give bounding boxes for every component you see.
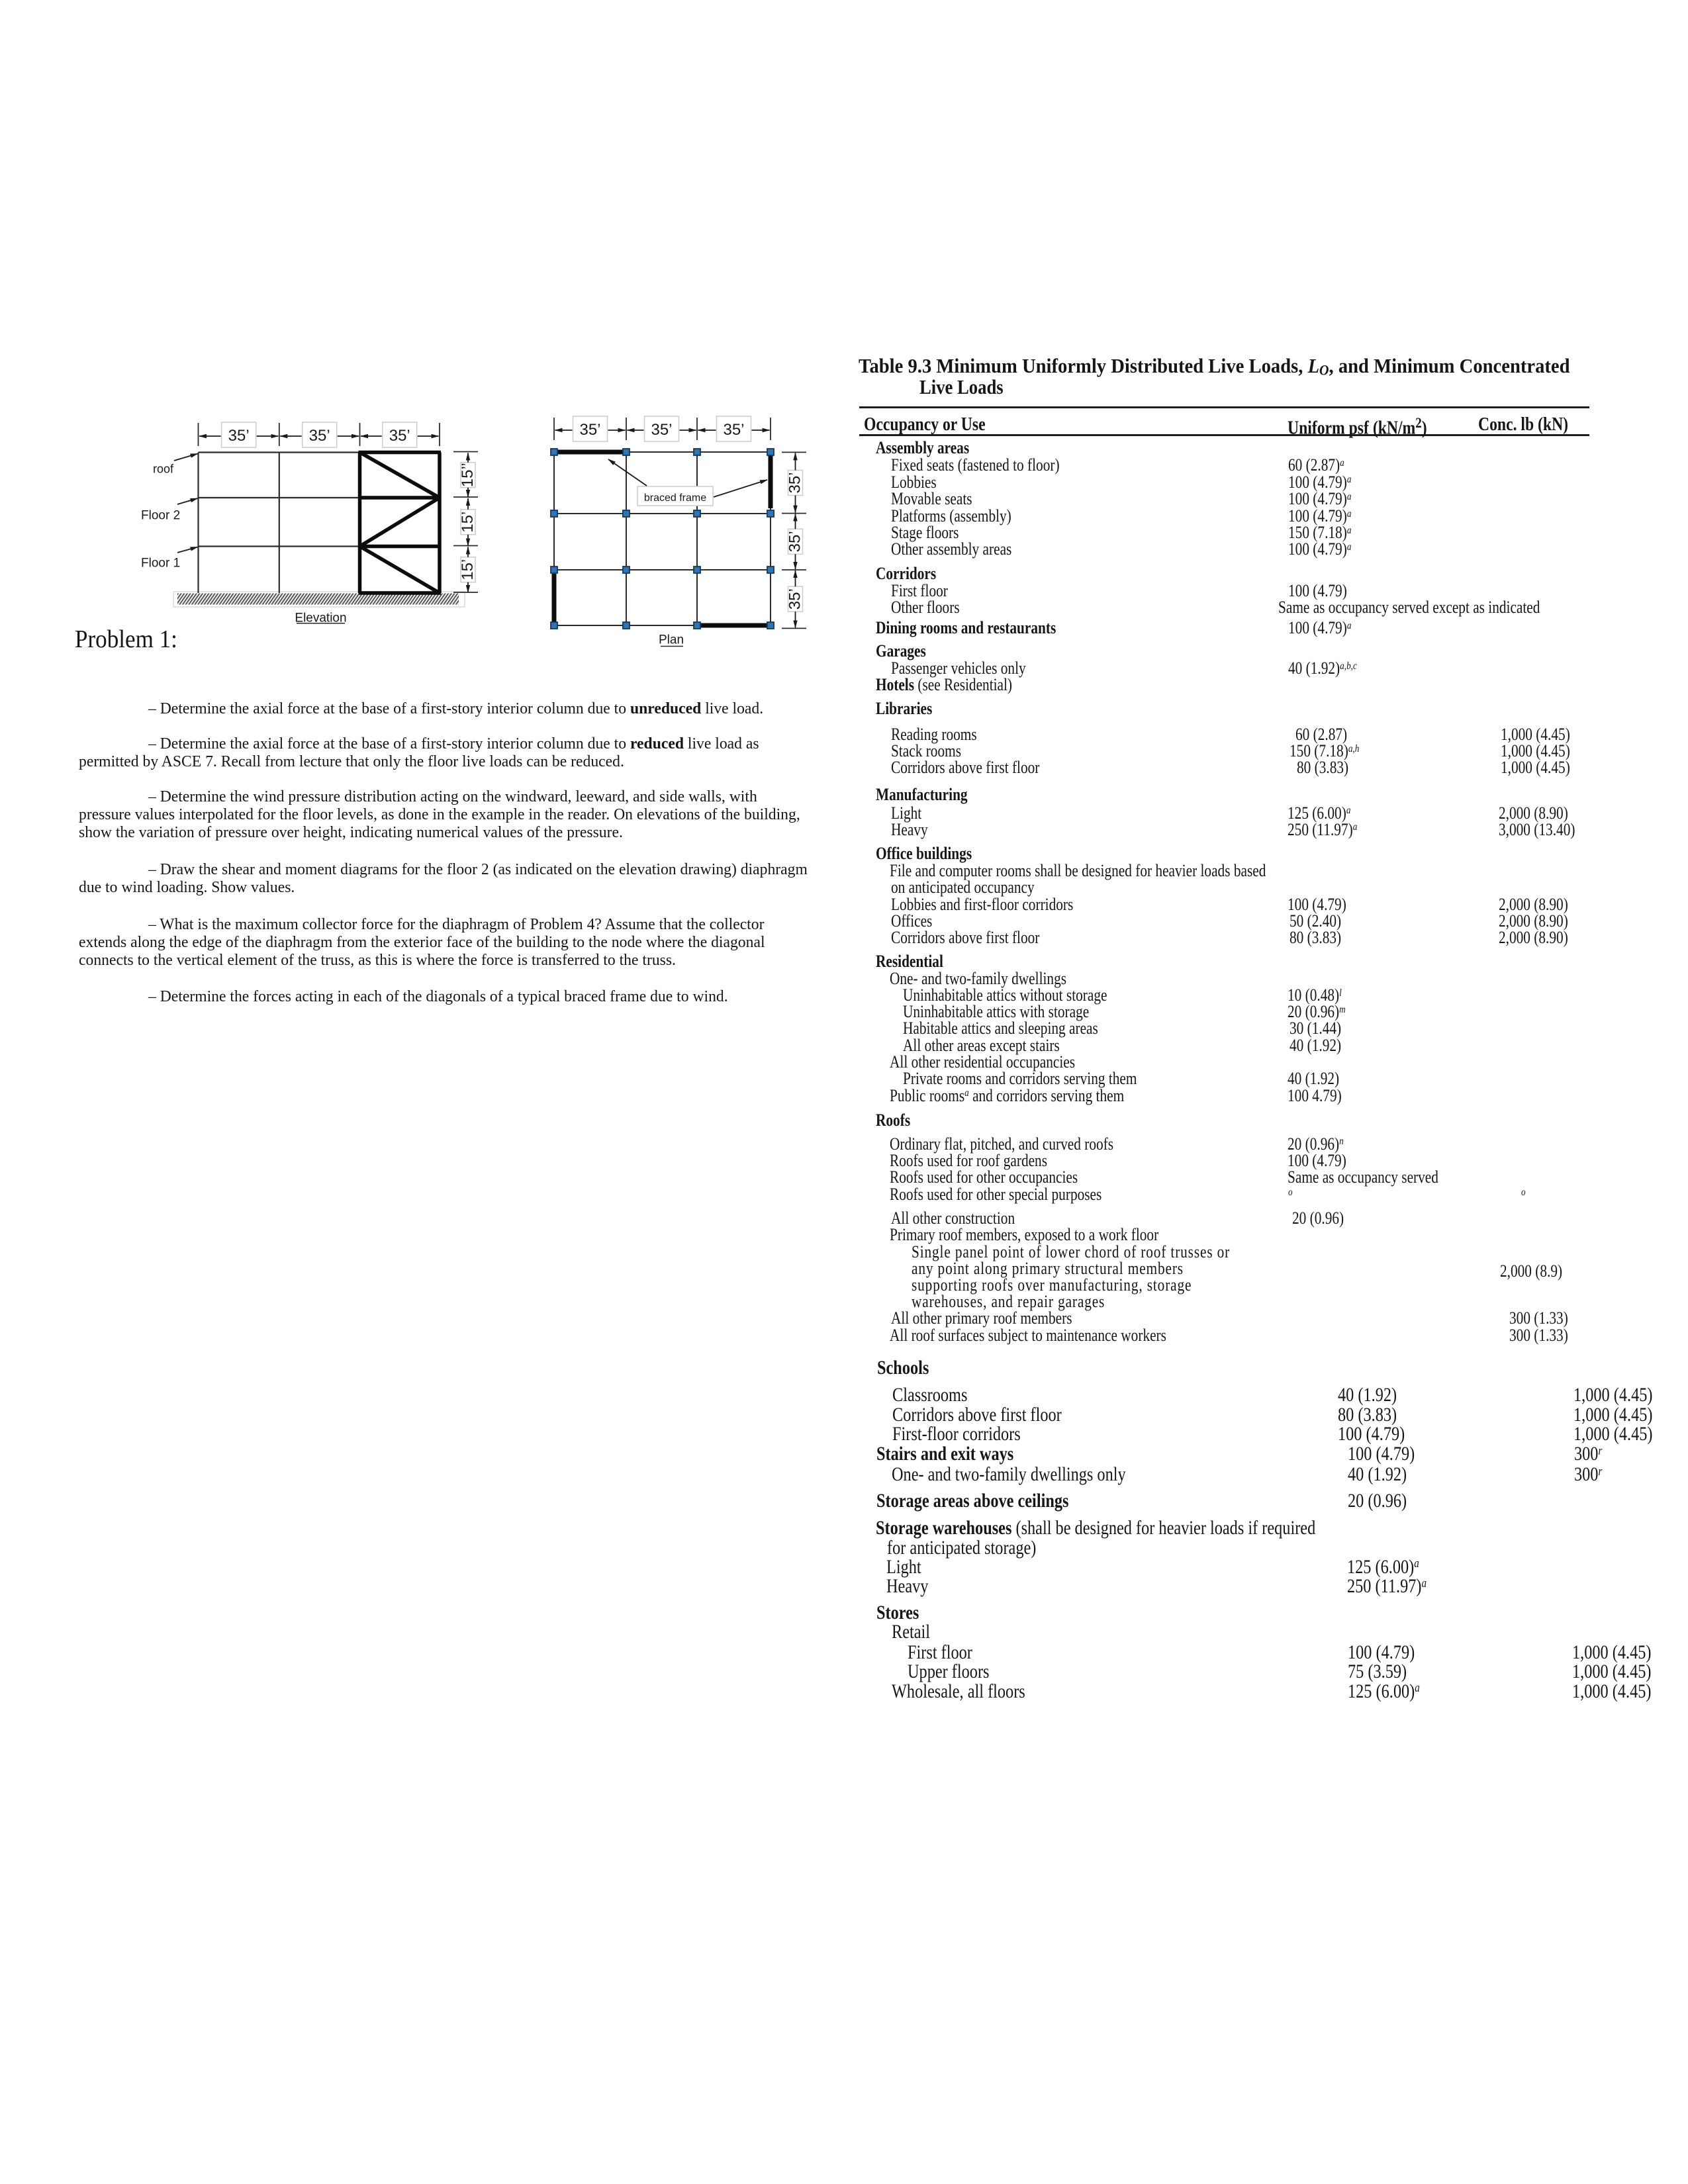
svg-text:35’: 35’ (786, 588, 804, 610)
svg-text:35’: 35’ (651, 421, 672, 439)
svg-text:35’: 35’ (389, 427, 410, 445)
svg-text:35’: 35’ (579, 421, 600, 439)
svg-text:35’: 35’ (228, 427, 250, 445)
svg-text:35’: 35’ (723, 421, 744, 439)
svg-text:Floor 1: Floor 1 (141, 557, 180, 570)
svg-text:15’: 15’ (459, 512, 477, 533)
svg-text:35’: 35’ (309, 427, 330, 445)
svg-text:Floor 2: Floor 2 (141, 509, 180, 523)
svg-text:15’’: 15’’ (459, 463, 477, 487)
svg-text:braced frame: braced frame (644, 492, 706, 504)
svg-text:roof: roof (153, 463, 174, 476)
svg-text:35’: 35’ (786, 531, 804, 552)
svg-text:15’: 15’ (459, 559, 477, 580)
svg-text:Plan: Plan (659, 633, 684, 647)
svg-text:35’: 35’ (786, 472, 804, 493)
